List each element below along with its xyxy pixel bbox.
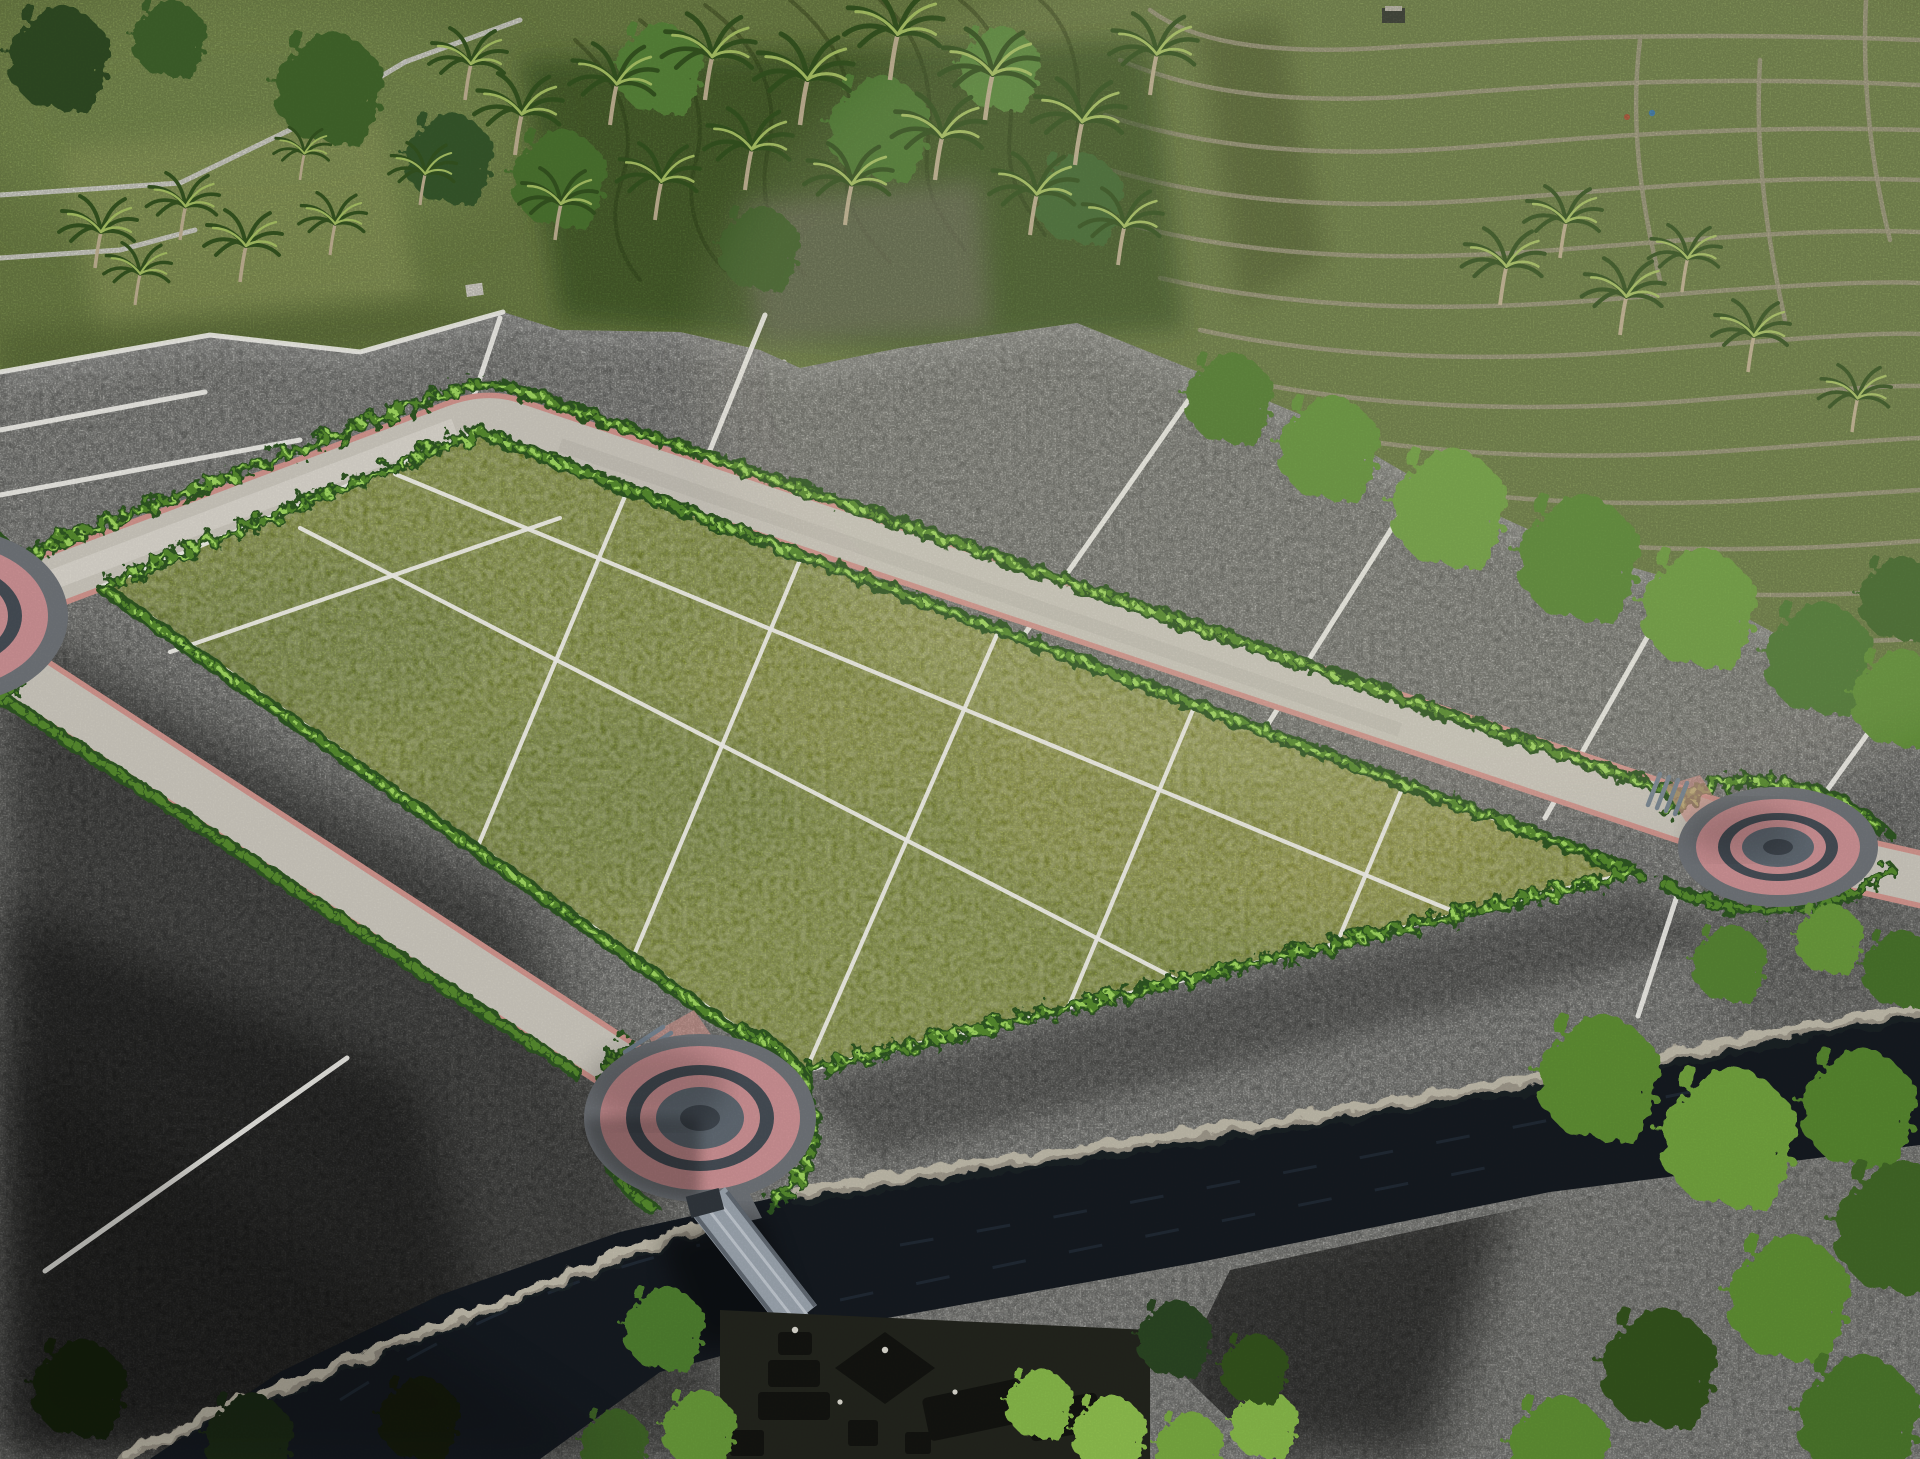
photo-grain — [0, 0, 1920, 1459]
aerial-masterplan-render: Photorealistic drone-style render: a bri… — [0, 0, 1920, 1459]
site-plan-scene — [0, 0, 1920, 1459]
global-lighting — [0, 0, 1920, 1459]
